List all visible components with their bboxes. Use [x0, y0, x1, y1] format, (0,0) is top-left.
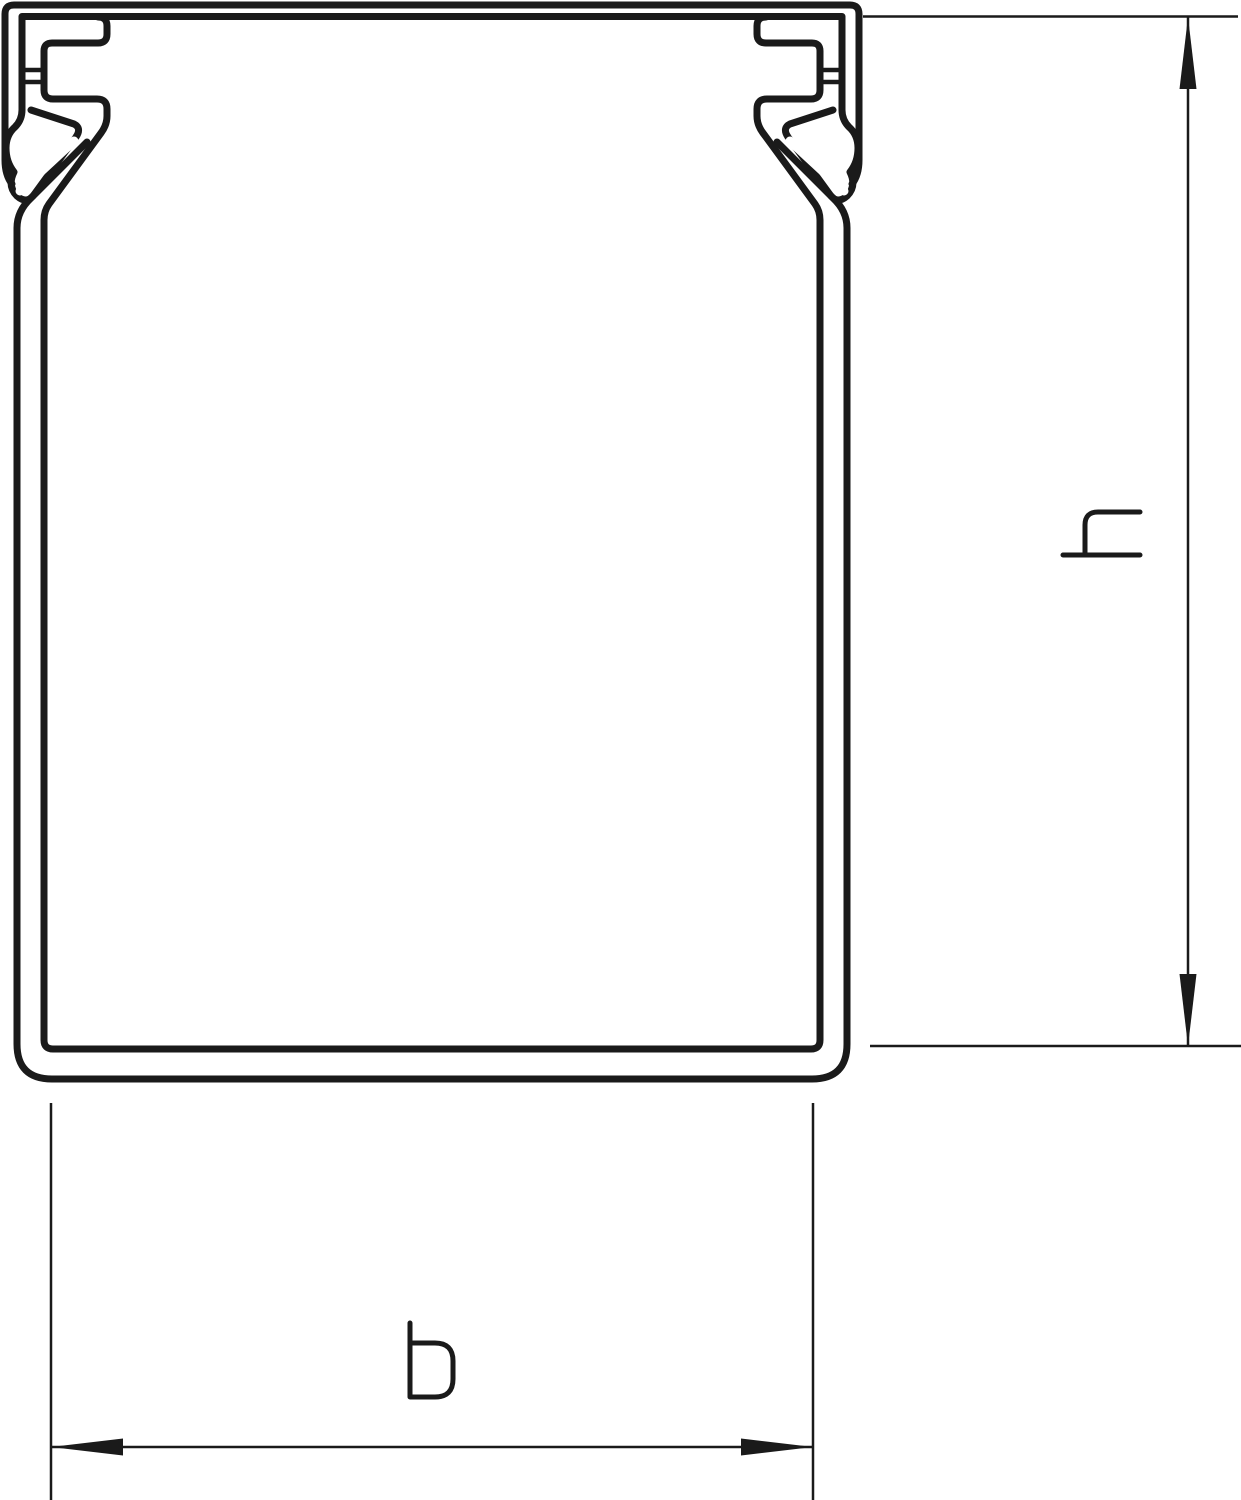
b-dimension-label: [410, 1323, 453, 1397]
dimension-b: [51, 1103, 813, 1500]
h-arrowhead-up-icon: [1180, 17, 1197, 89]
b-arrowhead-left-icon: [51, 1439, 123, 1456]
inner-contour: [44, 17, 820, 1049]
h-dimension-label: [1063, 512, 1140, 555]
outer-contour: [17, 142, 847, 1079]
b-arrowhead-right-icon: [741, 1439, 813, 1456]
diagram-canvas: [0, 0, 1241, 1500]
cover-top-outline: [5, 5, 859, 184]
dimension-h: [863, 17, 1241, 1047]
duct-profile: [5, 5, 859, 1079]
duct-cross-section-drawing: [0, 0, 1241, 1500]
h-arrowhead-down-icon: [1180, 974, 1197, 1046]
